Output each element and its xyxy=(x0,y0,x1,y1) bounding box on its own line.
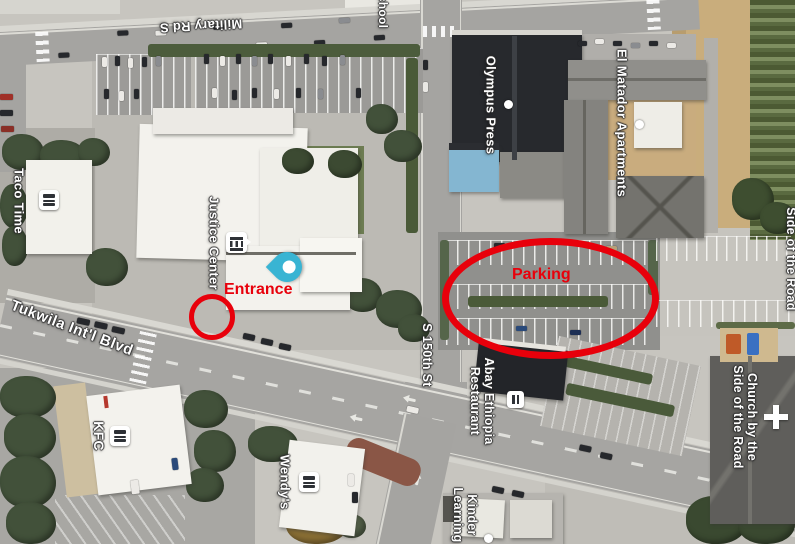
hedge xyxy=(468,296,608,307)
label-s-150th-st: S 150th St xyxy=(420,323,434,386)
car xyxy=(212,88,217,98)
car xyxy=(220,56,225,66)
church-cross-icon[interactable] xyxy=(764,405,788,429)
car xyxy=(356,88,361,98)
restaurant-burger-icon[interactable] xyxy=(299,472,319,492)
parking-stalls xyxy=(656,236,791,261)
car xyxy=(58,52,69,58)
parking-lot xyxy=(195,48,423,113)
car xyxy=(649,41,658,46)
roof-ridge xyxy=(568,78,706,81)
building-taco-time xyxy=(26,160,92,254)
label-kinder-learning[interactable]: Kinder Learning xyxy=(451,487,479,542)
car xyxy=(268,54,273,64)
roof-ridge xyxy=(512,36,517,160)
label-wendys[interactable]: Wendy's xyxy=(278,455,293,510)
car xyxy=(119,91,124,101)
label-side-of-the-road: Side of the Road xyxy=(784,207,795,310)
label-kfc[interactable]: KFC xyxy=(91,421,107,451)
car xyxy=(318,89,323,99)
tree xyxy=(86,248,128,286)
car xyxy=(274,89,279,99)
car xyxy=(171,458,178,471)
car xyxy=(236,54,241,64)
government-building-icon[interactable] xyxy=(226,232,247,253)
car xyxy=(102,57,107,67)
car xyxy=(613,41,622,46)
car xyxy=(600,452,613,460)
label-church-by-the-side-of-the-road[interactable]: Church by the Side of the Road xyxy=(731,365,759,468)
car xyxy=(339,18,350,24)
tree xyxy=(366,104,398,134)
car xyxy=(374,35,385,41)
tree xyxy=(0,376,56,418)
building-el-matador xyxy=(564,100,608,234)
car xyxy=(304,54,309,64)
car xyxy=(494,243,505,248)
car xyxy=(281,23,292,29)
car xyxy=(117,30,128,36)
lane-arrow xyxy=(352,416,362,421)
car xyxy=(134,89,139,99)
car xyxy=(352,492,358,503)
parking-annotation-label: Parking xyxy=(512,266,571,284)
parking-stalls xyxy=(55,495,185,544)
car xyxy=(128,58,133,68)
car xyxy=(156,56,161,66)
car xyxy=(606,246,617,251)
crosswalk xyxy=(35,31,50,62)
car xyxy=(0,110,13,116)
car xyxy=(142,57,147,67)
car xyxy=(111,326,125,335)
roof-ridge xyxy=(583,100,586,234)
car xyxy=(631,43,640,48)
poi-dot-icon[interactable] xyxy=(635,120,644,129)
tree xyxy=(0,456,56,508)
building-justice-center xyxy=(153,108,293,134)
restaurant-icon[interactable] xyxy=(507,391,524,408)
restaurant-burger-icon[interactable] xyxy=(110,426,130,446)
parking-lot-circled xyxy=(438,232,660,350)
satellite-map[interactable]: Military Rd S school Taco Time Justice C… xyxy=(0,0,795,544)
car xyxy=(252,56,257,66)
playground-structure xyxy=(726,334,741,354)
playground-structure xyxy=(747,333,759,355)
tree xyxy=(194,430,236,472)
roof-edge xyxy=(452,30,582,35)
lane-arrow xyxy=(406,397,416,402)
building-justice-center xyxy=(300,238,362,292)
restaurant-burger-icon[interactable] xyxy=(39,190,59,210)
crosswalk xyxy=(129,328,157,384)
car xyxy=(322,56,327,66)
car xyxy=(204,54,209,64)
car xyxy=(516,326,527,331)
parking-stalls xyxy=(446,240,648,265)
car xyxy=(104,89,109,99)
crosswalk xyxy=(646,0,661,30)
car xyxy=(348,474,354,486)
hedge xyxy=(440,240,449,340)
label-olympus-press[interactable]: Olympus Press xyxy=(484,56,499,155)
tree xyxy=(4,414,56,460)
tree xyxy=(184,390,228,428)
car xyxy=(115,56,120,66)
poi-dot-icon[interactable] xyxy=(484,534,493,543)
car xyxy=(570,330,581,335)
driveway xyxy=(704,38,718,233)
car xyxy=(423,82,428,92)
tree xyxy=(282,148,314,174)
building-kinder-learning xyxy=(510,500,552,538)
car xyxy=(595,39,604,44)
label-el-matador-apartments[interactable]: El Matador Apartments xyxy=(615,49,630,197)
car xyxy=(578,41,587,46)
sidewalk xyxy=(0,0,120,14)
car xyxy=(0,94,13,100)
car xyxy=(232,90,237,100)
tree xyxy=(6,502,56,544)
label-justice-center[interactable]: Justice Center xyxy=(207,196,222,290)
hedge xyxy=(148,44,420,57)
car xyxy=(130,480,140,495)
entrance-annotation-label: Entrance xyxy=(224,281,292,299)
label-abay-ethiopia-restaurant[interactable]: Abay Ethiopia Restaurant xyxy=(468,357,496,444)
car xyxy=(423,60,428,70)
poi-dot-icon[interactable] xyxy=(504,100,513,109)
tree xyxy=(384,130,422,162)
car xyxy=(286,56,291,66)
car xyxy=(667,43,676,48)
tree xyxy=(328,150,362,178)
car xyxy=(296,88,301,98)
tree xyxy=(186,468,224,502)
label-taco-time[interactable]: Taco Time xyxy=(12,168,27,234)
label-school: school xyxy=(376,0,390,28)
car xyxy=(1,126,14,132)
car xyxy=(340,55,345,65)
car xyxy=(252,88,257,98)
